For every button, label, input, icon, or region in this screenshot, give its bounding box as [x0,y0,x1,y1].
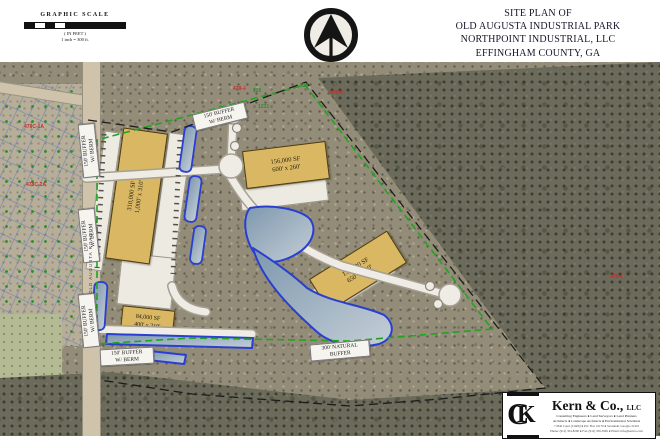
scale-ratio: 1 inch = 300 ft. [14,37,136,43]
graphic-scale-title: GRAPHIC SCALE [14,12,136,18]
engineer-logo-box: C K Kern & Co., LLC Consulting Engineers… [502,392,656,439]
graphic-scale: GRAPHIC SCALE ( IN FEET ) 1 inch = 300 f… [14,12,136,44]
buffer-label-bottom: 150' BUFFERW/ BERM [100,347,155,367]
parcel-label-1231: 1231 [258,104,269,110]
culdesac-center [219,154,243,178]
site-plan-sheet: SITE PLAN OF OLD AUGUSTA INDUSTRIAL PARK… [0,0,660,442]
parcel-label-478c-2a: 478C-2A [26,182,46,188]
scale-bar [24,22,126,29]
kern-monogram-icon: C K [507,393,539,438]
road-name-label: OLD AUGUSTA ROAD [88,232,93,294]
aerial-map: 310,000 SF 1,000' x 310' 156,000 SF 600'… [0,62,660,436]
title-line-3: NORTHPOINT INDUSTRIAL, LLC [420,33,656,46]
parcel-label-478-8: 478-8 [330,90,343,96]
parcel-label-528: 528 [300,83,308,89]
north-arrow-icon [302,6,360,69]
title-line-1: SITE PLAN OF [420,7,656,20]
title-line-4: EFFINGHAM COUNTY, GA [420,47,656,60]
parcel-label-478-4b: 478-4 [610,274,623,280]
title-line-2: OLD AUGUSTA INDUSTRIAL PARK [420,20,656,33]
company-name: Kern & Co., LLC [542,398,651,414]
parcel-label-478-4a: 478-4 [233,86,246,92]
company-contact: Phone: (912) 354-8200 ● Fax: (912) 356-3… [542,429,651,434]
parcel-label-478c-1a: 478C-1A [24,124,44,130]
parcel-label-120: 120 [253,88,261,94]
pond-strips [91,125,206,330]
loading-dock-ticks [97,134,180,274]
